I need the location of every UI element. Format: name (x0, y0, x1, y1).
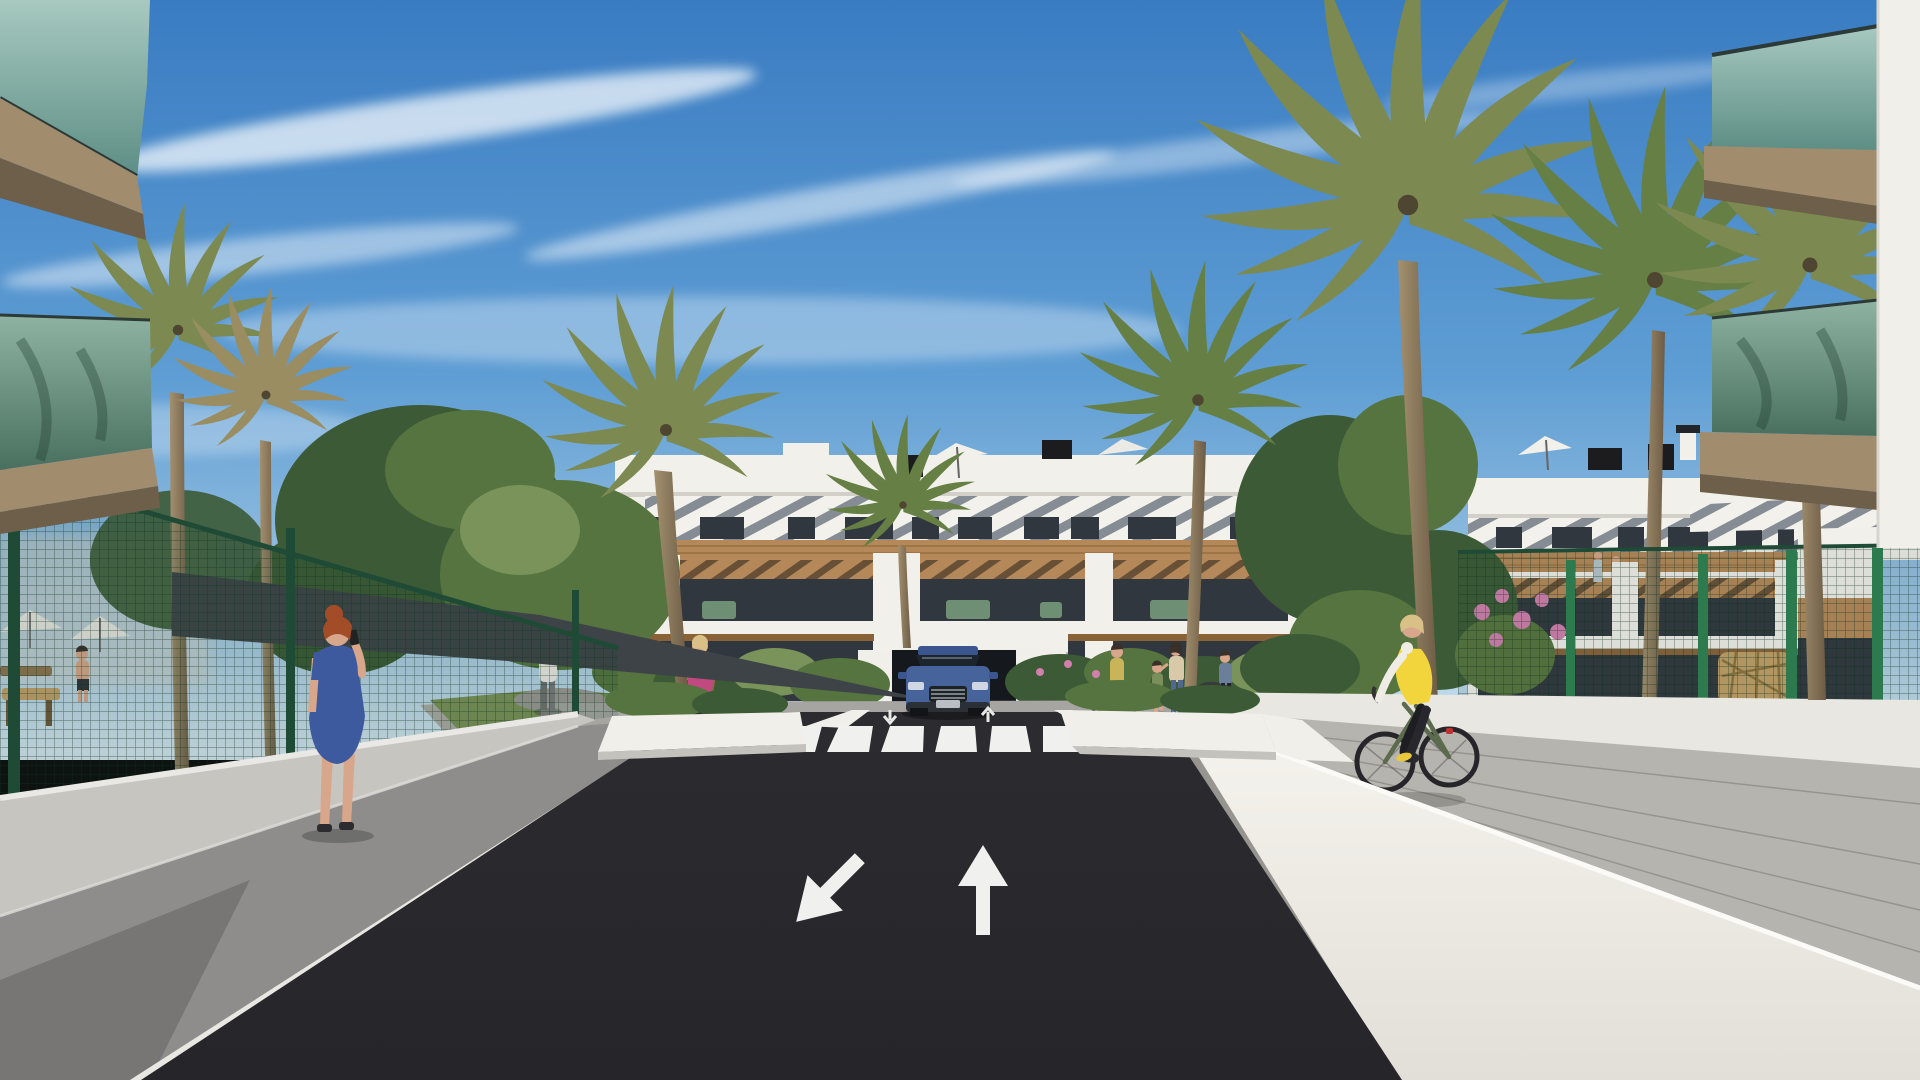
render-image (0, 0, 1920, 1080)
fence-right (1458, 545, 1920, 714)
wood-band (640, 540, 1305, 560)
